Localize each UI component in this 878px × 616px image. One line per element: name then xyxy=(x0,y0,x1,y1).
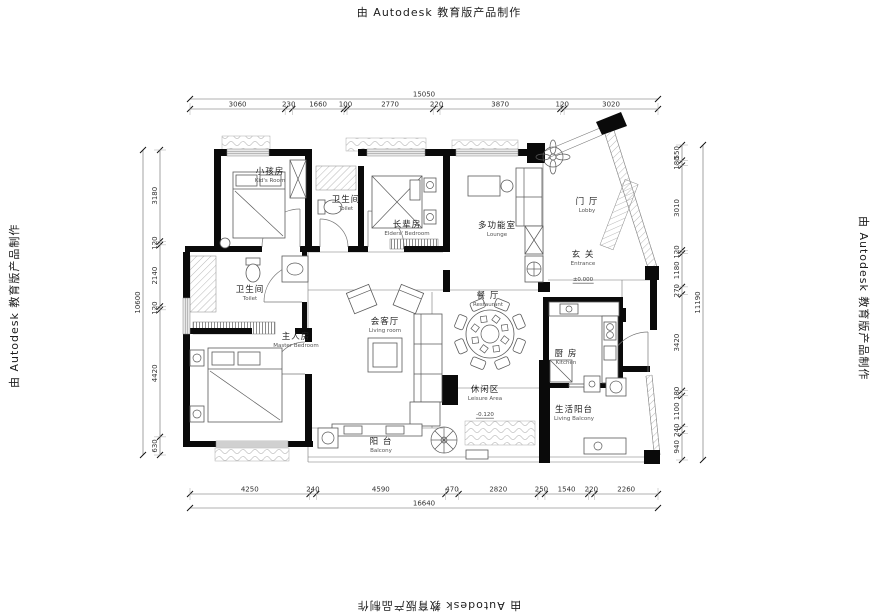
svg-text:240: 240 xyxy=(306,486,319,494)
floor-plan-page: { "watermarks": { "top": "由 Autodesk 教育版… xyxy=(0,0,878,616)
dining-table xyxy=(454,298,526,370)
svg-text:3870: 3870 xyxy=(491,101,509,109)
balcony-plant xyxy=(431,427,457,453)
svg-text:2770: 2770 xyxy=(381,101,399,109)
svg-text:3020: 3020 xyxy=(602,101,620,109)
svg-text:940: 940 xyxy=(673,440,681,453)
svg-text:2260: 2260 xyxy=(617,486,635,494)
svg-text:240: 240 xyxy=(673,423,681,436)
svg-text:250: 250 xyxy=(535,486,548,494)
svg-text:120: 120 xyxy=(151,301,159,314)
svg-text:11190: 11190 xyxy=(694,291,702,313)
floor-plan-canvas: 3060230166010027702203870120302015050 42… xyxy=(0,0,878,616)
svg-text:180: 180 xyxy=(673,387,681,400)
svg-text:2820: 2820 xyxy=(489,486,507,494)
dimension-chain-left: 31801202140120442063010600 xyxy=(134,147,166,458)
dimension-chain-right: 5501803010120118027034201801100240940111… xyxy=(673,142,706,463)
svg-text:1660: 1660 xyxy=(309,101,327,109)
svg-text:10600: 10600 xyxy=(134,291,142,313)
svg-text:470: 470 xyxy=(445,486,458,494)
svg-text:15050: 15050 xyxy=(413,91,435,99)
svg-text:1540: 1540 xyxy=(558,486,576,494)
dimension-chain-top: 3060230166010027702203870120302015050 xyxy=(187,91,661,116)
dimension-chain-bottom: 4250240459047028202501540220226016640 xyxy=(187,486,661,512)
svg-text:16640: 16640 xyxy=(413,500,435,508)
svg-text:4250: 4250 xyxy=(241,486,259,494)
svg-text:3010: 3010 xyxy=(673,199,681,217)
svg-text:1180: 1180 xyxy=(673,261,681,279)
svg-text:4590: 4590 xyxy=(372,486,390,494)
svg-text:220: 220 xyxy=(585,486,598,494)
svg-text:220: 220 xyxy=(430,101,443,109)
svg-text:3420: 3420 xyxy=(673,334,681,352)
svg-text:270: 270 xyxy=(673,284,681,297)
svg-text:120: 120 xyxy=(556,101,569,109)
svg-text:630: 630 xyxy=(151,439,159,452)
svg-text:1100: 1100 xyxy=(673,402,681,420)
svg-text:4420: 4420 xyxy=(151,364,159,382)
svg-text:230: 230 xyxy=(282,101,295,109)
svg-text:120: 120 xyxy=(673,245,681,258)
svg-text:2140: 2140 xyxy=(151,267,159,285)
svg-text:180: 180 xyxy=(673,156,681,169)
svg-text:3180: 3180 xyxy=(151,187,159,205)
svg-text:100: 100 xyxy=(339,101,352,109)
svg-text:120: 120 xyxy=(151,236,159,249)
svg-text:3060: 3060 xyxy=(229,101,247,109)
